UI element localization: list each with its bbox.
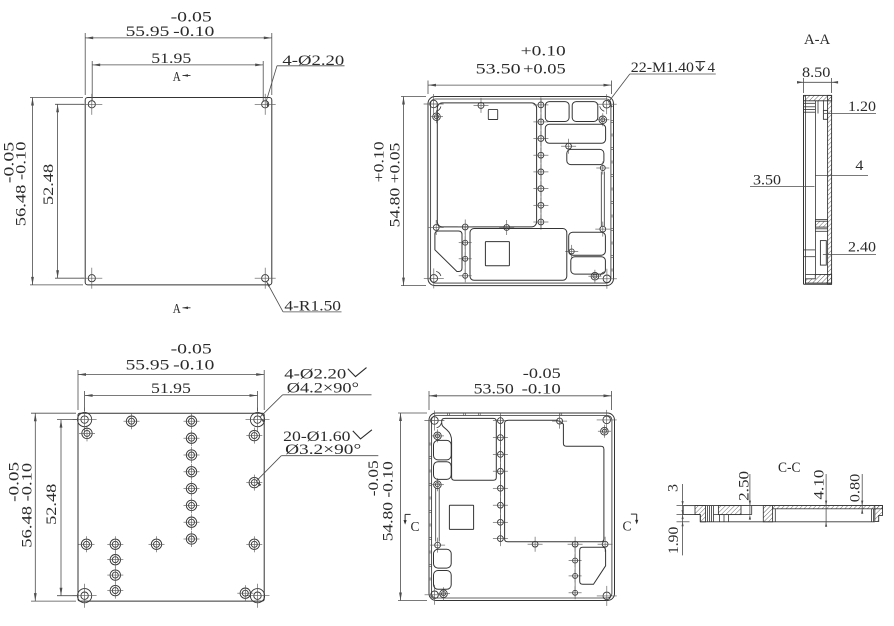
svg-text:4: 4 — [855, 158, 864, 174]
svg-text:A: A — [173, 69, 181, 84]
svg-text:52.48: 52.48 — [44, 484, 60, 525]
svg-text:51.95: 51.95 — [151, 51, 191, 67]
svg-text:51.95: 51.95 — [151, 381, 191, 397]
svg-text:4-Ø2.20: 4-Ø2.20 — [282, 53, 344, 69]
svg-text:53.50: 53.50 — [476, 62, 521, 78]
svg-text:C: C — [411, 520, 420, 535]
svg-text:2.50: 2.50 — [736, 471, 752, 501]
svg-text:53.50: 53.50 — [474, 382, 514, 398]
svg-text:1.20: 1.20 — [848, 99, 876, 115]
svg-text:-0.05: -0.05 — [523, 366, 561, 382]
svg-text:+0.10: +0.10 — [372, 141, 388, 182]
svg-text:3.50: 3.50 — [753, 173, 781, 189]
svg-text:4.10: 4.10 — [811, 470, 827, 500]
svg-text:A-A: A-A — [804, 32, 830, 48]
svg-text:Ø4.2×90°: Ø4.2×90° — [287, 381, 359, 397]
svg-text:-0.05: -0.05 — [171, 10, 212, 26]
svg-text:54.80 +0.05: 54.80 +0.05 — [387, 143, 403, 228]
svg-text:55.95: 55.95 — [126, 24, 170, 40]
svg-text:0.80: 0.80 — [848, 474, 864, 503]
svg-text:-0.10: -0.10 — [173, 357, 214, 373]
svg-text:+0.05: +0.05 — [523, 62, 566, 78]
svg-text:3: 3 — [665, 484, 681, 492]
svg-text:55.95: 55.95 — [126, 357, 170, 373]
svg-text:-0.10: -0.10 — [522, 382, 561, 398]
svg-text:8.50: 8.50 — [802, 65, 830, 81]
svg-text:C: C — [623, 519, 632, 534]
svg-text:-0.10: -0.10 — [173, 24, 214, 40]
svg-text:56.48 -0.10: 56.48 -0.10 — [14, 142, 30, 227]
svg-text:52.48: 52.48 — [41, 164, 57, 205]
svg-text:+0.10: +0.10 — [521, 44, 566, 60]
svg-text:A: A — [173, 301, 181, 316]
svg-text:-0.05: -0.05 — [171, 341, 212, 357]
svg-text:54.80 -0.10: 54.80 -0.10 — [381, 461, 397, 541]
svg-text:-0.05: -0.05 — [366, 460, 382, 496]
svg-text:56.48 -0.10: 56.48 -0.10 — [19, 463, 35, 548]
svg-text:2.40: 2.40 — [848, 240, 876, 256]
svg-text:1.90: 1.90 — [666, 527, 682, 554]
svg-text:C-C: C-C — [778, 460, 801, 476]
